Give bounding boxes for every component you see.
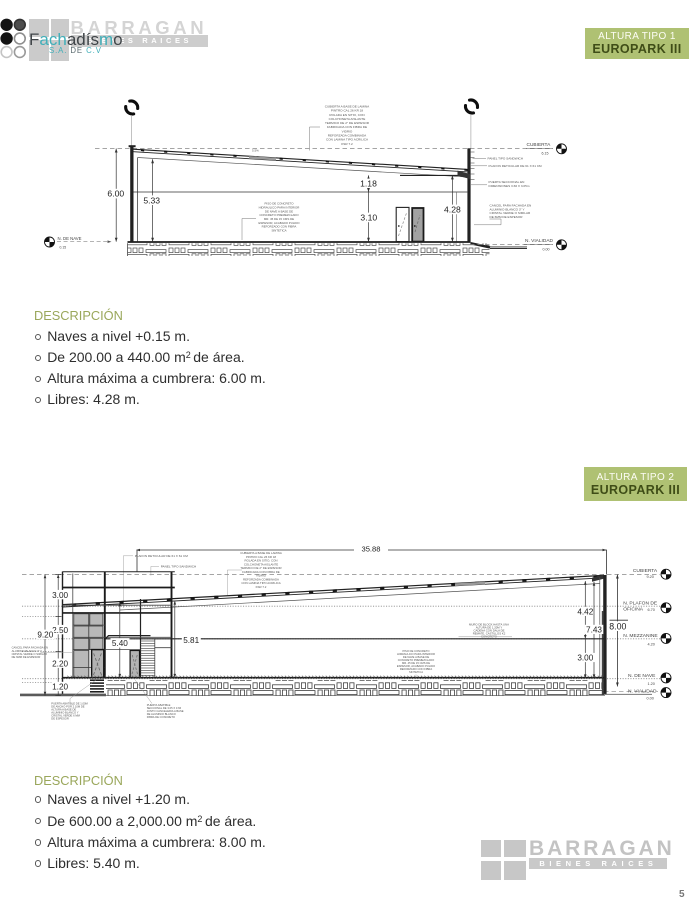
svg-text:PANEL TIPO SANDWICH: PANEL TIPO SANDWICH bbox=[161, 565, 197, 569]
svg-text:2.50: 2.50 bbox=[52, 626, 68, 635]
svg-text:2.20: 2.20 bbox=[52, 659, 68, 668]
svg-text:CUBIERTA: CUBIERTA bbox=[633, 568, 658, 574]
svg-text:DE ESPESOR: DE ESPESOR bbox=[51, 717, 69, 721]
svg-text:0.00: 0.00 bbox=[543, 247, 550, 251]
svg-text:CONCRETO: CONCRETO bbox=[481, 634, 498, 638]
svg-text:CUBIERTA: CUBIERTA bbox=[527, 142, 552, 148]
svg-text:4.28: 4.28 bbox=[444, 205, 461, 215]
svg-text:N. DE NAVE: N. DE NAVE bbox=[58, 236, 82, 241]
svg-text:1.20: 1.20 bbox=[648, 682, 655, 686]
svg-text:35.88: 35.88 bbox=[361, 544, 380, 553]
svg-text:7.43: 7.43 bbox=[586, 626, 602, 635]
svg-text:9.20: 9.20 bbox=[37, 630, 53, 639]
svg-text:N. DE NAVE: N. DE NAVE bbox=[628, 673, 656, 679]
svg-text:4.20: 4.20 bbox=[648, 642, 655, 646]
svg-text:5.33: 5.33 bbox=[143, 195, 160, 205]
svg-text:OFICINA: OFICINA bbox=[623, 606, 644, 612]
svg-text:9.20: 9.20 bbox=[647, 575, 654, 579]
svg-text:SINTETICA: SINTETICA bbox=[409, 670, 423, 674]
svg-text:8.00: 8.00 bbox=[609, 621, 626, 631]
svg-text:1.18: 1.18 bbox=[360, 178, 377, 188]
svg-text:3.00: 3.00 bbox=[577, 654, 593, 663]
svg-text:5.5%: 5.5% bbox=[252, 149, 259, 153]
svg-text:5.40: 5.40 bbox=[112, 639, 128, 648]
svg-text:3.00: 3.00 bbox=[52, 591, 68, 600]
svg-text:PANEL TIPO SANDWICH: PANEL TIPO SANDWICH bbox=[488, 157, 524, 161]
svg-text:PLAFON RETICULAR DE 61 X 61 CM: PLAFON RETICULAR DE 61 X 61 CM bbox=[135, 554, 189, 558]
svg-text:1.20: 1.20 bbox=[52, 683, 68, 692]
svg-text:FIBRA DE CONCRETO: FIBRA DE CONCRETO bbox=[147, 715, 175, 719]
svg-text:0.00: 0.00 bbox=[647, 697, 654, 701]
svg-text:N. PLAFON DE: N. PLAFON DE bbox=[623, 600, 658, 606]
svg-text:SINTETICA: SINTETICA bbox=[271, 229, 286, 233]
svg-text:N. VIALIDAD: N. VIALIDAD bbox=[628, 688, 657, 694]
svg-text:6.00: 6.00 bbox=[107, 189, 124, 199]
svg-text:N. VIALIDAD: N. VIALIDAD bbox=[525, 238, 554, 244]
svg-text:3.10: 3.10 bbox=[360, 213, 377, 223]
svg-text:6.15: 6.15 bbox=[542, 152, 549, 156]
svg-text:DE 6MM DE ESPESOR: DE 6MM DE ESPESOR bbox=[12, 655, 41, 659]
svg-text:PLAFON RETICULAR DE 61 X 61 CM: PLAFON RETICULAR DE 61 X 61 CM bbox=[489, 164, 543, 168]
svg-text:DIMENSIONES 3.66 X 3.05m: DIMENSIONES 3.66 X 3.05m bbox=[489, 184, 530, 188]
svg-text:0.15: 0.15 bbox=[60, 246, 67, 250]
svg-text:DE 6MM DE ESPESOR: DE 6MM DE ESPESOR bbox=[490, 215, 524, 219]
svg-text:N. MEZZANINE: N. MEZZANINE bbox=[623, 633, 658, 639]
svg-text:KSR 7.2: KSR 7.2 bbox=[256, 585, 267, 589]
svg-text:6.70: 6.70 bbox=[648, 608, 655, 612]
svg-text:4.42: 4.42 bbox=[577, 608, 593, 617]
svg-text:KSR 7.2: KSR 7.2 bbox=[341, 142, 353, 146]
svg-text:5.81: 5.81 bbox=[183, 636, 199, 645]
